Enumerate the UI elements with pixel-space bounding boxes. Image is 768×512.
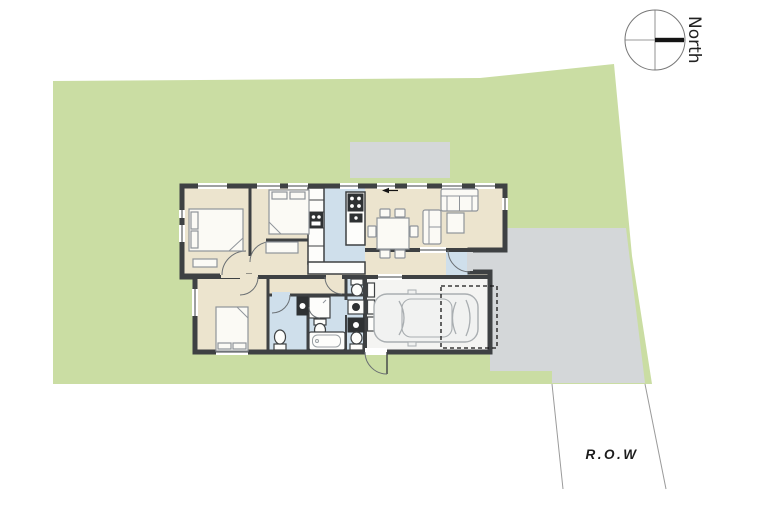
site-plan-drawing: R.O.W [0,0,768,512]
garage-door-gap [378,274,402,280]
oven-tower [310,213,323,228]
entry-floor [446,251,469,276]
window-north-6 [407,183,427,189]
dining-chair [380,250,390,258]
window-north-1 [198,183,227,189]
window-north-7 [442,183,462,189]
row-boundary-left [552,384,563,489]
row-boundary-right [645,384,666,489]
bath-vanity [348,300,364,314]
wc-toilet [351,279,363,296]
bed-double [269,190,309,234]
loveseat [423,210,441,244]
north-compass: North [625,10,704,70]
ensuite-vanity [297,297,308,315]
garage-shelf [368,283,375,297]
bed-double [189,209,243,251]
shower [309,297,330,318]
window-east-1 [502,198,508,210]
dining-chair [410,226,418,237]
window-west-3 [192,289,198,316]
bathtub [309,332,345,350]
ensuite-toilet [274,330,286,350]
dining-chair [395,250,405,258]
desk [266,242,298,253]
row-corridor: R.O.W [552,384,666,489]
dining-table [377,218,409,249]
kitchen-island [346,192,365,245]
cooktop [348,194,363,211]
kitchen-bench [308,262,365,274]
window-north-8 [475,183,495,189]
window-west-2 [179,225,185,242]
dining-chair [368,226,376,237]
coffee-table [447,213,464,233]
row-label: R.O.W [586,447,639,462]
window-west-1 [179,210,185,218]
house [179,183,508,374]
north-arrow [655,38,684,42]
window-north-3 [288,183,308,189]
dresser [193,259,217,267]
window-north-2 [257,183,280,189]
dining-chair [380,209,390,217]
north-label: North [684,16,704,64]
window-north-5 [377,183,395,189]
sofa [441,189,478,211]
bed-double [216,307,248,351]
second-toilet [350,332,363,350]
window-north-4 [340,183,358,189]
kitchen-sink [350,214,362,222]
window-living-south [420,247,446,253]
site-plan-page: R.O.W [0,0,768,512]
car [374,290,478,346]
bedroom3 [216,307,248,351]
laundry-unit [348,318,364,332]
dining-chair [395,209,405,217]
patio-area [350,142,450,178]
